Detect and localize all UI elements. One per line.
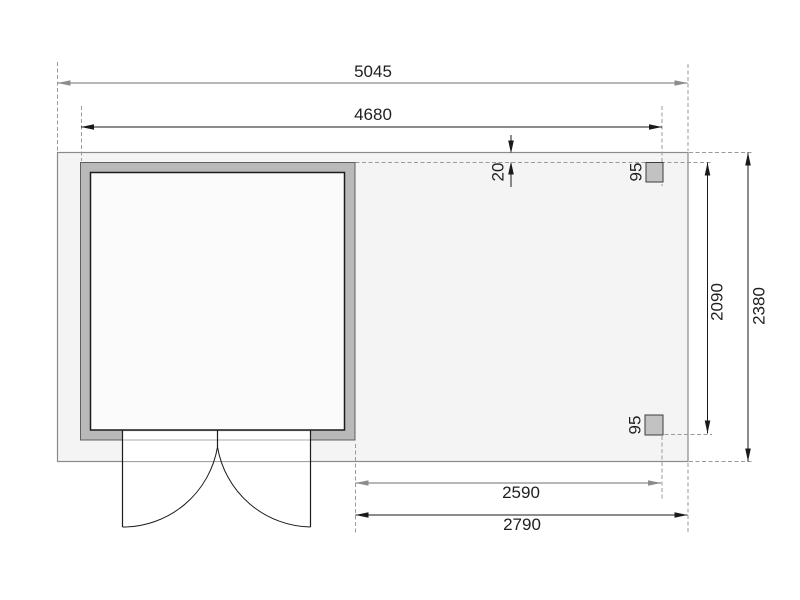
dim-label-post-top: 95 bbox=[627, 163, 646, 182]
dim-label-annex-outer: 2790 bbox=[503, 515, 541, 534]
floor-plan-page: 5045 4680 20 95 95 2090 2380 2590 2790 bbox=[0, 0, 800, 600]
dim-label-cabin-width: 4680 bbox=[354, 105, 392, 124]
dim-label-post-bottom: 95 bbox=[626, 416, 645, 435]
dim-label-overall-width: 5045 bbox=[354, 62, 392, 81]
dim-label-overall-depth: 2380 bbox=[750, 287, 769, 325]
post-bottom-right bbox=[645, 415, 663, 435]
dim-line-cabin-width bbox=[81, 124, 662, 130]
dim-line-overall-width bbox=[58, 80, 688, 86]
floor-plan-drawing: 5045 4680 20 95 95 2090 2380 2590 2790 bbox=[0, 0, 800, 600]
door-opening bbox=[123, 431, 310, 461]
cabin-floor bbox=[91, 173, 345, 431]
dim-label-roof-offset: 20 bbox=[489, 163, 508, 182]
post-top-right bbox=[646, 163, 663, 183]
dim-label-annex-inner: 2590 bbox=[502, 483, 540, 502]
dim-label-post-span: 2090 bbox=[708, 283, 727, 321]
